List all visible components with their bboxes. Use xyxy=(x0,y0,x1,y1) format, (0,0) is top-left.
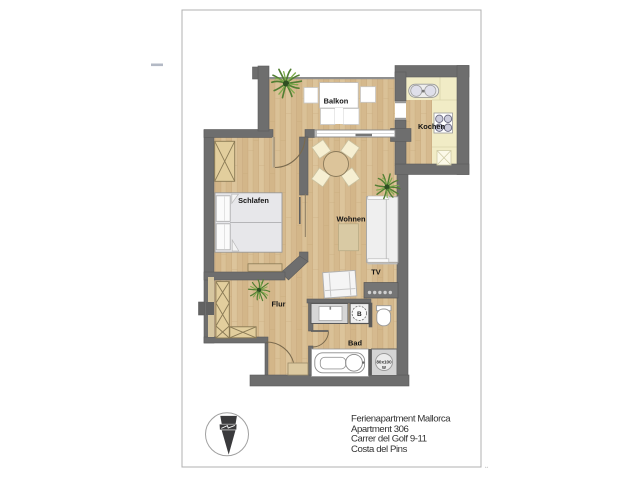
svg-text:Costa del Pins: Costa del Pins xyxy=(351,444,408,455)
svg-text:Balkon: Balkon xyxy=(324,96,349,105)
svg-text:80x100: 80x100 xyxy=(376,360,392,365)
svg-text:TV: TV xyxy=(371,267,381,276)
svg-text:Flur: Flur xyxy=(272,299,286,308)
svg-text:Bad: Bad xyxy=(348,338,362,347)
svg-text:B: B xyxy=(357,311,362,318)
svg-text:Kochen: Kochen xyxy=(418,122,446,131)
svg-text:Schlafen: Schlafen xyxy=(238,196,269,205)
svg-text:↔: ↔ xyxy=(484,464,489,470)
svg-text:Wohnen: Wohnen xyxy=(336,214,365,223)
svg-text:W: W xyxy=(382,365,386,370)
